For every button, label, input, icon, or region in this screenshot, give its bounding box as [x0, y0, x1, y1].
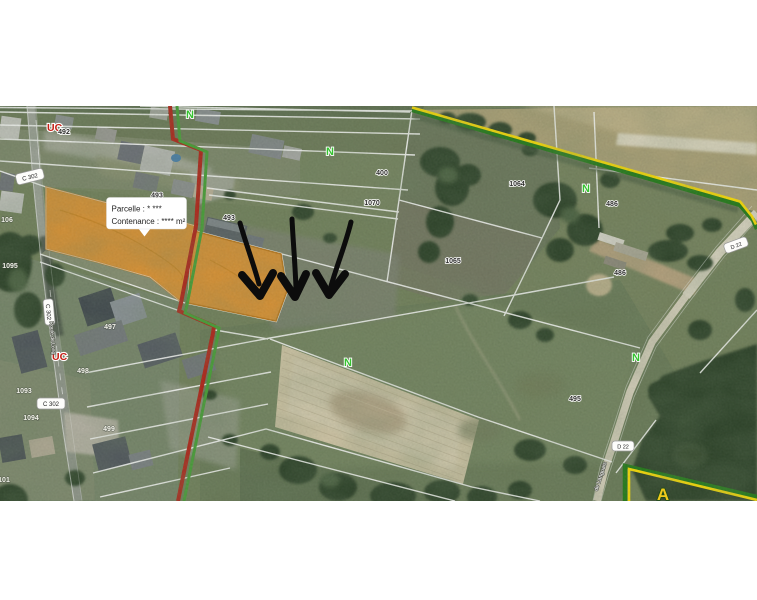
svg-text:486: 486	[614, 270, 626, 277]
svg-text:1065: 1065	[445, 258, 461, 265]
svg-text:1070: 1070	[364, 200, 380, 207]
svg-text:1093: 1093	[16, 388, 32, 395]
svg-text:1094: 1094	[23, 415, 39, 422]
svg-text:498: 498	[77, 368, 89, 375]
svg-text:N: N	[186, 109, 194, 121]
svg-text:1095: 1095	[2, 263, 18, 270]
svg-text:A: A	[657, 485, 669, 504]
svg-text:Contenance : **** m²: Contenance : **** m²	[112, 217, 186, 226]
svg-text:N: N	[344, 357, 352, 369]
svg-text:C 302: C 302	[43, 402, 60, 408]
svg-text:101: 101	[0, 477, 10, 484]
svg-text:N: N	[326, 146, 334, 158]
svg-text:497: 497	[104, 324, 116, 331]
svg-text:486: 486	[606, 201, 618, 208]
svg-text:499: 499	[103, 426, 115, 433]
svg-text:D 22: D 22	[617, 445, 629, 451]
svg-text:495: 495	[569, 396, 581, 403]
svg-text:492: 492	[58, 129, 70, 136]
svg-text:400: 400	[376, 170, 388, 177]
svg-text:1064: 1064	[509, 181, 525, 188]
svg-text:106: 106	[1, 217, 13, 224]
svg-text:N: N	[632, 352, 640, 364]
svg-text:N: N	[582, 183, 590, 195]
svg-text:493: 493	[223, 215, 235, 222]
svg-text:Parcelle : * ***: Parcelle : * ***	[112, 205, 162, 214]
